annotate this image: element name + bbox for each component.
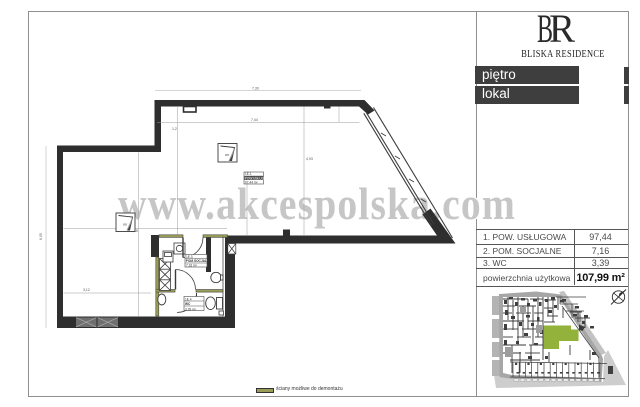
svg-text:1,2: 1,2 <box>172 127 177 131</box>
svg-text:1E.1: 1E.1 <box>245 172 252 176</box>
svg-text:1E.4: 1E.4 <box>185 297 192 301</box>
svg-text:7,30: 7,30 <box>252 87 259 91</box>
svg-text:WC: WC <box>185 302 191 306</box>
svg-text:xx: xx <box>123 222 127 227</box>
svg-text:R: R <box>549 12 575 46</box>
svg-text:3,12: 3,12 <box>83 288 90 292</box>
svg-text:97,44 m²: 97,44 m² <box>245 180 258 184</box>
svg-text:7,44: 7,44 <box>251 118 258 122</box>
svg-text:3,39 m²: 3,39 m² <box>185 307 196 311</box>
svg-text:6,05: 6,05 <box>39 233 43 240</box>
svg-text:7,16 m²: 7,16 m² <box>186 263 197 267</box>
svg-text:4,93: 4,93 <box>306 157 313 161</box>
svg-text:1E.3: 1E.3 <box>186 255 193 259</box>
svg-text:xx: xx <box>225 152 229 157</box>
